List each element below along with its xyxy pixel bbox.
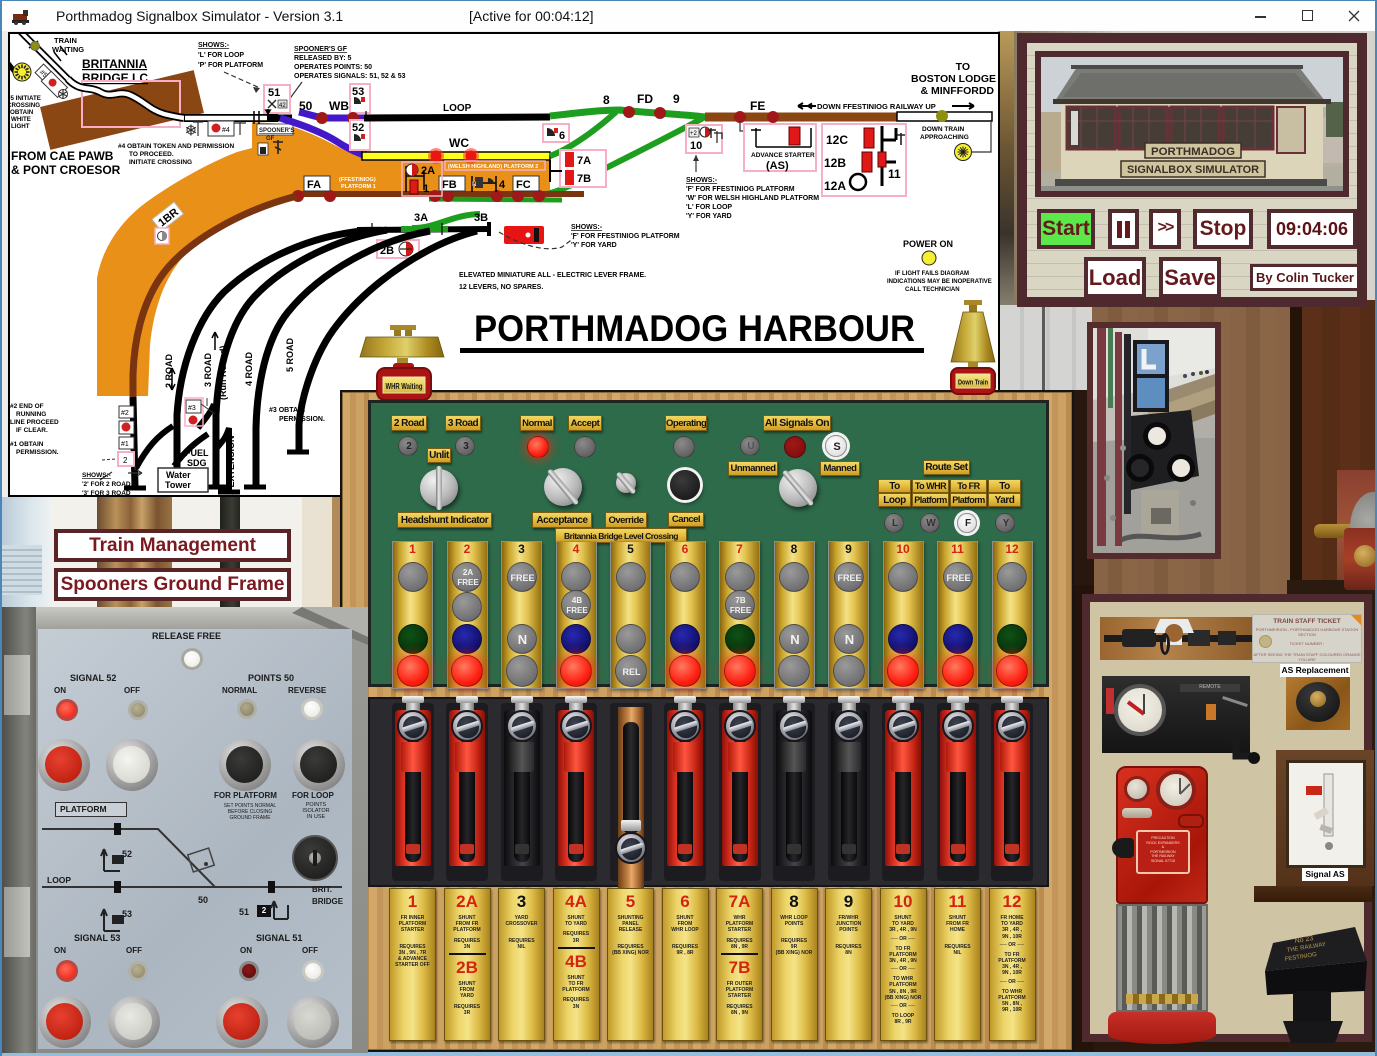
svg-text:WHR Waiting: WHR Waiting: [386, 382, 423, 391]
svg-text:LINE PROCEED: LINE PROCEED: [10, 419, 59, 426]
svg-text:12B: 12B: [824, 156, 846, 170]
svg-text:APPROACHING: APPROACHING: [920, 134, 969, 141]
svg-text:& MINFFORDD: & MINFFORDD: [921, 85, 995, 97]
svg-text:GF: GF: [266, 136, 275, 142]
svg-text:PLATFORM 1: PLATFORM 1: [341, 184, 376, 190]
svg-text:TO: TO: [956, 61, 970, 73]
svg-text:INITIATE CROSSING: INITIATE CROSSING: [129, 159, 192, 166]
svg-text:SIGNALBOX SIMULATOR: SIGNALBOX SIMULATOR: [1127, 164, 1259, 176]
svg-text:42: 42: [279, 103, 286, 109]
svg-text:ADVANCE STARTER: ADVANCE STARTER: [751, 152, 815, 159]
svg-text:11: 11: [888, 167, 901, 181]
svg-text:WHITE: WHITE: [11, 116, 31, 123]
svg-text:'W' FOR WELSH HIGHLAND PLATFO: 'W' FOR WELSH HIGHLAND PLATFORM: [686, 195, 819, 202]
svg-text:SHOWS:-: SHOWS:-: [82, 472, 111, 479]
svg-text:6: 6: [559, 130, 565, 142]
svg-text:5 ROAD: 5 ROAD: [285, 337, 295, 372]
svg-text:SHOWS:-: SHOWS:-: [686, 177, 718, 184]
svg-text:3 EXTENSION: 3 EXTENSION: [226, 435, 236, 495]
svg-text:PORTHMADOG: PORTHMADOG: [1151, 146, 1235, 158]
svg-text:N: N: [472, 182, 476, 188]
svg-text:OPERATES POINTS: 50: OPERATES POINTS: 50: [294, 64, 372, 71]
svg-text:CALL TECHNICIAN: CALL TECHNICIAN: [905, 287, 960, 293]
svg-text:BRITANNIA: BRITANNIA: [82, 57, 147, 71]
svg-text:Down Train: Down Train: [958, 378, 988, 387]
svg-text:CROSSING: CROSSING: [10, 102, 40, 109]
svg-text:TRAIN: TRAIN: [54, 36, 77, 45]
svg-text:12 LEVERS, NO SPARES.: 12 LEVERS, NO SPARES.: [459, 284, 543, 291]
svg-text:FC: FC: [516, 179, 531, 191]
svg-text:Tower: Tower: [165, 480, 191, 490]
svg-text:(WELSH HIGHLAND) PLATFORM 2: (WELSH HIGHLAND) PLATFORM 2: [448, 164, 538, 170]
svg-text:#4 OBTAIN TOKEN AND PERMIS: #4 OBTAIN TOKEN AND PERMISSION: [118, 143, 234, 150]
svg-text:'F' FOR FFESTINIOG PLATFORM: 'F' FOR FFESTINIOG PLATFORM: [686, 186, 795, 193]
svg-text:FB: FB: [442, 179, 457, 191]
svg-text:7A: 7A: [577, 155, 591, 167]
svg-text:'L' FOR LOOP: 'L' FOR LOOP: [198, 52, 244, 59]
svg-text:PORTHMADOG HARBOUR: PORTHMADOG HARBOUR: [474, 308, 915, 349]
svg-text:SHOWS:-: SHOWS:-: [198, 42, 230, 49]
svg-text:FA: FA: [307, 179, 321, 191]
svg-text:51: 51: [268, 87, 280, 99]
svg-text:#1: #1: [121, 441, 129, 448]
svg-text:RUNNING: RUNNING: [16, 411, 46, 418]
svg-text:+2: +2: [690, 131, 698, 137]
svg-text:(FFESTINIOG): (FFESTINIOG): [339, 177, 376, 183]
svg-text:#3: #3: [188, 405, 196, 412]
svg-text:4: 4: [499, 179, 506, 191]
svg-text:FROM CAE PAWB: FROM CAE PAWB: [11, 149, 114, 163]
svg-text:OBTAIN: OBTAIN: [10, 109, 34, 116]
svg-text:FE: FE: [750, 99, 765, 113]
svg-text:DOWN TRAIN: DOWN TRAIN: [922, 126, 965, 133]
svg-text:DOWN FFESTINIOG RAILWAY: DOWN FFESTINIOG RAILWAY UP: [817, 102, 936, 111]
svg-text:BOSTON LODGE: BOSTON LODGE: [911, 73, 996, 85]
svg-text:'3' FOR 3 ROAD: '3' FOR 3 ROAD: [82, 490, 131, 495]
svg-text:PERMISSION.: PERMISSION.: [279, 416, 325, 423]
svg-text:8: 8: [603, 93, 610, 107]
svg-text:LOOP: LOOP: [443, 103, 472, 114]
svg-text:ELEVATED MINIATURE ALL - ELE: ELEVATED MINIATURE ALL - ELECTRIC LEVER …: [459, 272, 646, 279]
svg-text:PERMISSION.: PERMISSION.: [16, 449, 59, 456]
svg-text:10: 10: [690, 140, 702, 152]
svg-text:52: 52: [352, 122, 364, 134]
svg-text:SHOWS:-: SHOWS:-: [571, 224, 603, 231]
svg-text:& PONT CROESOR: & PONT CROESOR: [11, 163, 121, 177]
svg-text:3 ROAD: 3 ROAD: [203, 352, 213, 387]
svg-text:1: 1: [423, 183, 429, 195]
svg-text:12A: 12A: [824, 179, 846, 193]
svg-text:7B: 7B: [577, 173, 591, 185]
svg-text:OPERATES SIGNALS: 51, 52 & 53: OPERATES SIGNALS: 51, 52 & 53: [294, 73, 406, 80]
svg-text:#2: #2: [121, 410, 129, 417]
svg-text:2A: 2A: [421, 165, 435, 177]
svg-text:'P' FOR PLATFORM: 'P' FOR PLATFORM: [198, 62, 263, 69]
svg-text:FD: FD: [637, 92, 653, 106]
svg-text:BRIDGE LC: BRIDGE LC: [82, 71, 148, 85]
svg-text:3A: 3A: [414, 212, 428, 224]
svg-text:LIGHT: LIGHT: [11, 123, 30, 130]
svg-text:#2 END OF: #2 END OF: [10, 403, 44, 410]
svg-text:INDICATIONS MAY BE INOPERATIVE: INDICATIONS MAY BE INOPERATIVE: [887, 279, 992, 285]
svg-text:WAITING: WAITING: [52, 45, 84, 54]
svg-text:SPOONER'S: SPOONER'S: [259, 128, 294, 134]
svg-text:3B: 3B: [474, 212, 488, 224]
svg-text:#1 OBTAIN: #1 OBTAIN: [10, 441, 44, 448]
svg-text:'F' FOR FFESTINIOG PLATFORM: 'F' FOR FFESTINIOG PLATFORM: [571, 233, 680, 240]
svg-text:IF LIGHT FAILS DIAGRAM: IF LIGHT FAILS DIAGRAM: [895, 271, 969, 277]
svg-text:#4: #4: [222, 127, 230, 134]
svg-text:'2' FOR 2 ROAD: '2' FOR 2 ROAD: [82, 481, 131, 488]
svg-text:TO PROCEED.: TO PROCEED.: [129, 151, 174, 158]
svg-text:POWER ON: POWER ON: [903, 239, 953, 249]
svg-text:SPOONER'S GF: SPOONER'S GF: [294, 46, 348, 53]
svg-text:FUEL: FUEL: [185, 448, 209, 458]
svg-text:53: 53: [352, 86, 364, 98]
svg-text:'Y' FOR YARD: 'Y' FOR YARD: [686, 213, 732, 220]
svg-text:#5 INITIATE: #5 INITIATE: [10, 95, 41, 102]
svg-text:12C: 12C: [826, 133, 848, 147]
svg-text:9: 9: [673, 92, 680, 106]
svg-text:#3 OBTAIN: #3 OBTAIN: [269, 407, 305, 414]
svg-text:IF CLEAR.: IF CLEAR.: [16, 427, 48, 434]
svg-text:WC: WC: [449, 136, 469, 150]
svg-text:'L' FOR LOOP: 'L' FOR LOOP: [686, 204, 732, 211]
svg-text:(Run Round): (Run Round): [218, 346, 228, 400]
svg-text:Water: Water: [166, 470, 191, 480]
svg-text:WB: WB: [329, 99, 349, 113]
svg-text:(AS): (AS): [766, 160, 789, 172]
svg-text:4 ROAD: 4 ROAD: [244, 351, 254, 386]
svg-text:50: 50: [299, 99, 313, 113]
svg-text:SDG: SDG: [187, 458, 207, 468]
svg-text:2: 2: [123, 456, 128, 465]
svg-text:'Y' FOR YARD: 'Y' FOR YARD: [571, 242, 617, 249]
svg-text:RELEASED BY: 5: RELEASED BY: 5: [294, 55, 352, 62]
